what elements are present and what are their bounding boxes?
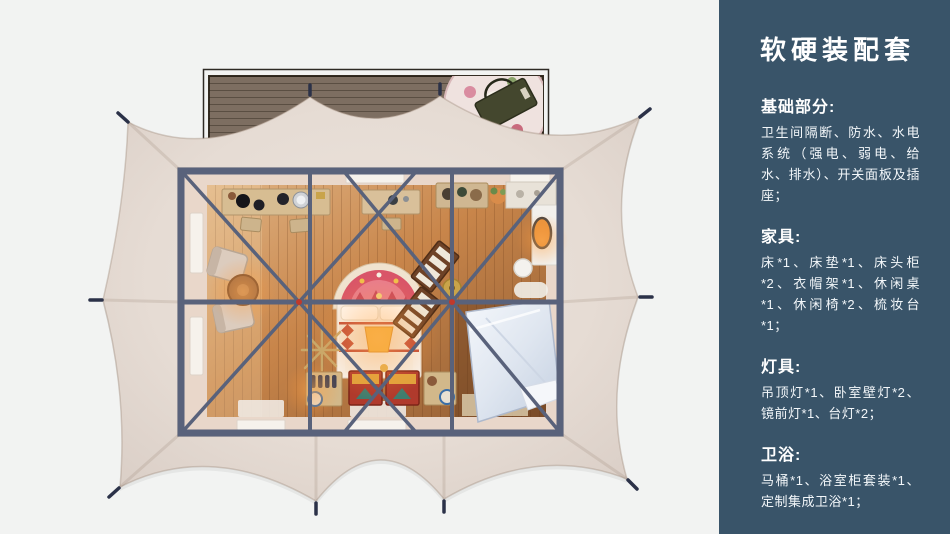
section-lighting-heading: 灯具:	[761, 353, 920, 377]
section-basics: 基础部分: 卫生间隔断、防水、水电系统（强电、弱电、给水、排水）、开关面板及插座…	[761, 93, 920, 206]
section-basics-heading: 基础部分:	[761, 93, 920, 117]
section-furniture-heading: 家具:	[761, 223, 920, 247]
section-bathroom: 卫浴: 马桶*1、浴室柜套装*1、定制集成卫浴*1；	[761, 441, 920, 512]
section-basics-body: 卫生间隔断、防水、水电系统（强电、弱电、给水、排水）、开关面板及插座；	[761, 122, 920, 206]
section-bathroom-body: 马桶*1、浴室柜套装*1、定制集成卫浴*1；	[761, 470, 920, 512]
section-lighting: 灯具: 吊顶灯*1、卧室壁灯*2、镜前灯*1、台灯*2；	[761, 353, 920, 424]
section-flooring: 地面: 强化木地板、卫生间防滑防潮石塑板；	[761, 529, 920, 534]
section-furniture: 家具: 床*1、床垫*1、床头柜*2、衣帽架*1、休闲桌*1、休闲椅*2、梳妆台…	[761, 223, 920, 336]
frame-joint	[449, 299, 455, 305]
render-area	[0, 0, 719, 534]
floorplan-render	[0, 0, 719, 534]
section-lighting-body: 吊顶灯*1、卧室壁灯*2、镜前灯*1、台灯*2；	[761, 382, 920, 424]
slide: 软硬装配套 基础部分: 卫生间隔断、防水、水电系统（强电、弱电、给水、排水）、开…	[0, 0, 950, 534]
section-bathroom-heading: 卫浴:	[761, 441, 920, 465]
spec-sidebar: 软硬装配套 基础部分: 卫生间隔断、防水、水电系统（强电、弱电、给水、排水）、开…	[719, 0, 950, 534]
sidebar-title: 软硬装配套	[755, 30, 920, 67]
section-furniture-body: 床*1、床垫*1、床头柜*2、衣帽架*1、休闲桌*1、休闲椅*2、梳妆台*1；	[761, 252, 920, 336]
frame-joint	[296, 299, 302, 305]
shower-enclosure	[466, 300, 560, 422]
section-flooring-heading: 地面:	[761, 529, 920, 534]
